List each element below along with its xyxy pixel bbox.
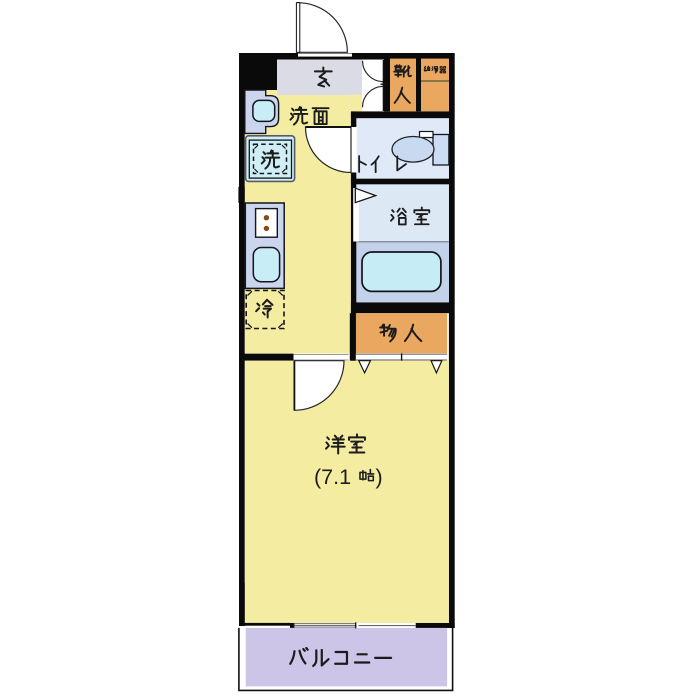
- svg-text:(7.1: (7.1: [314, 465, 351, 489]
- svg-text:): ): [376, 465, 383, 489]
